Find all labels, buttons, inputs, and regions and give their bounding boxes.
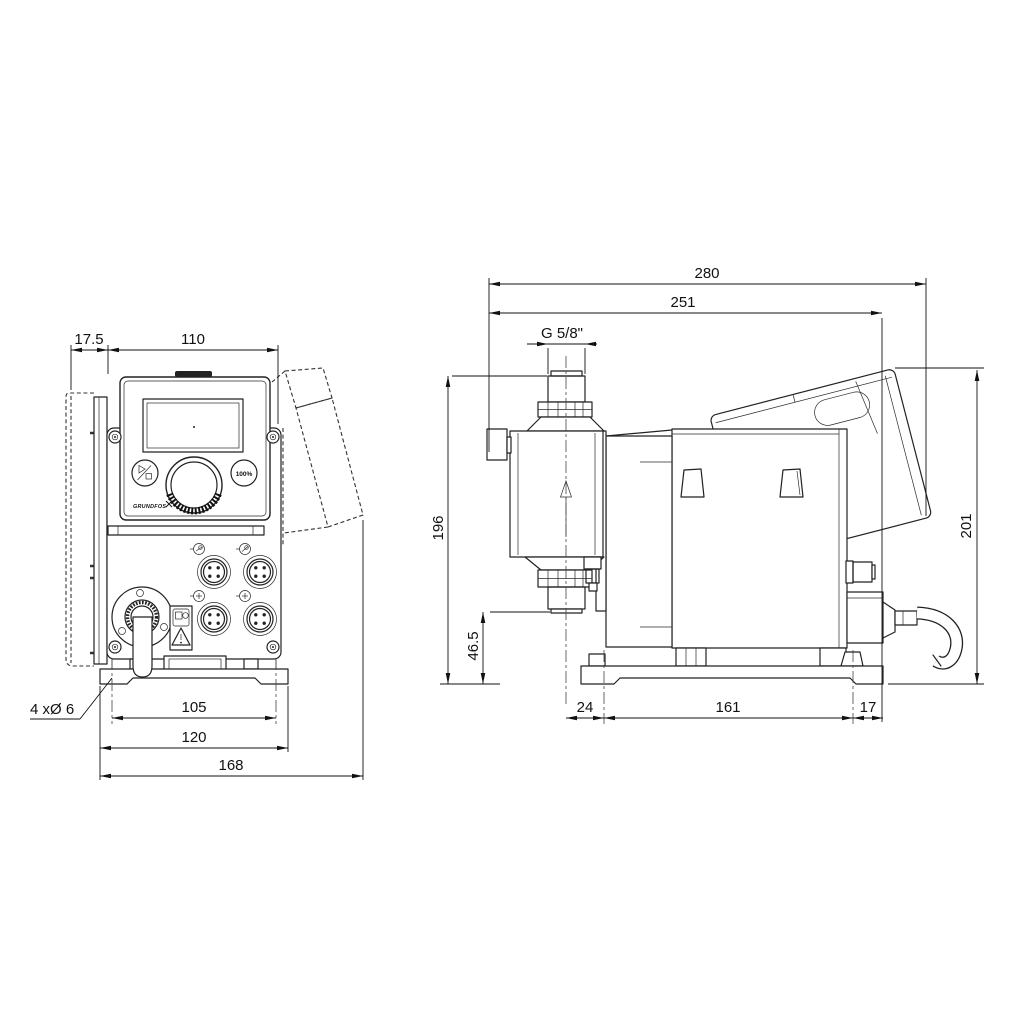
- cable: [133, 617, 152, 677]
- dim-17-5: 17.5: [71, 331, 108, 352]
- rear-knurled-screw[interactable]: [846, 561, 875, 583]
- max-capacity-button[interactable]: 100%: [231, 460, 257, 486]
- dim-251: 251: [489, 294, 882, 315]
- svg-text:17: 17: [860, 699, 877, 716]
- svg-text:46.5: 46.5: [465, 631, 482, 660]
- max-button-label: 100%: [236, 471, 253, 478]
- wall-mount-plate-hidden: [66, 393, 108, 666]
- svg-text:168: 168: [218, 757, 243, 774]
- dim-110: 110: [108, 331, 278, 352]
- dim-280: 280: [489, 265, 926, 286]
- svg-text:24: 24: [577, 699, 594, 716]
- motor-housing: [672, 429, 847, 648]
- top-tab: [175, 371, 212, 377]
- svg-text:251: 251: [670, 294, 695, 311]
- dim-161: 161: [604, 699, 853, 720]
- dim-thread: G 5/8": [527, 325, 597, 346]
- control-module-hidden: [272, 368, 363, 546]
- base-plate-side: [581, 648, 883, 684]
- screw-icon: [109, 431, 121, 443]
- dim-24: 24: [566, 699, 604, 720]
- side-view: 280 251 G 5/8" 196: [430, 265, 984, 724]
- screw-icon: [267, 431, 279, 443]
- top-nut: [538, 402, 592, 417]
- svg-text:120: 120: [181, 729, 206, 746]
- dim-17: 17: [853, 699, 883, 720]
- panel-bottom-flange: [108, 526, 264, 535]
- svg-text:4 xØ 6: 4 xØ 6: [30, 701, 74, 718]
- bottom-nut: [538, 570, 592, 587]
- start-stop-button[interactable]: [132, 460, 158, 486]
- dimensional-drawing: 100% GRUNDFOS: [0, 0, 1024, 1024]
- svg-text:G 5/8": G 5/8": [541, 325, 583, 342]
- adapter-flange: [596, 430, 672, 647]
- svg-text:110: 110: [181, 331, 205, 348]
- front-view: 100% GRUNDFOS: [30, 331, 363, 780]
- control-panel: 100% GRUNDFOS: [108, 371, 270, 535]
- warning-label: [170, 606, 192, 650]
- svg-text:280: 280: [694, 265, 719, 282]
- cable-gland-side: [847, 592, 957, 666]
- svg-text:105: 105: [181, 699, 206, 716]
- head-body: [510, 431, 603, 557]
- svg-text:GRUNDFOS: GRUNDFOS: [133, 504, 166, 510]
- dim-105: 105: [112, 699, 276, 720]
- svg-text:17.5: 17.5: [74, 331, 103, 348]
- cable-gland-front: [112, 587, 172, 677]
- dim-120: 120: [100, 729, 288, 750]
- dosing-head: [487, 371, 604, 613]
- top-thread: [548, 376, 585, 402]
- base-plate-front: [100, 669, 288, 684]
- svg-text:196: 196: [430, 515, 447, 540]
- svg-text:201: 201: [958, 513, 975, 538]
- valve-cap: [551, 371, 582, 376]
- air-bleed-knob[interactable]: [487, 429, 511, 460]
- click-wheel[interactable]: [166, 457, 222, 513]
- screw-icon: [109, 641, 121, 653]
- svg-text:161: 161: [715, 699, 740, 716]
- dim-46-5: 46.5: [465, 612, 485, 684]
- dim-196: 196: [430, 376, 450, 684]
- bottom-thread: [548, 587, 585, 609]
- screw-icon: [267, 641, 279, 653]
- dim-168: 168: [100, 757, 363, 778]
